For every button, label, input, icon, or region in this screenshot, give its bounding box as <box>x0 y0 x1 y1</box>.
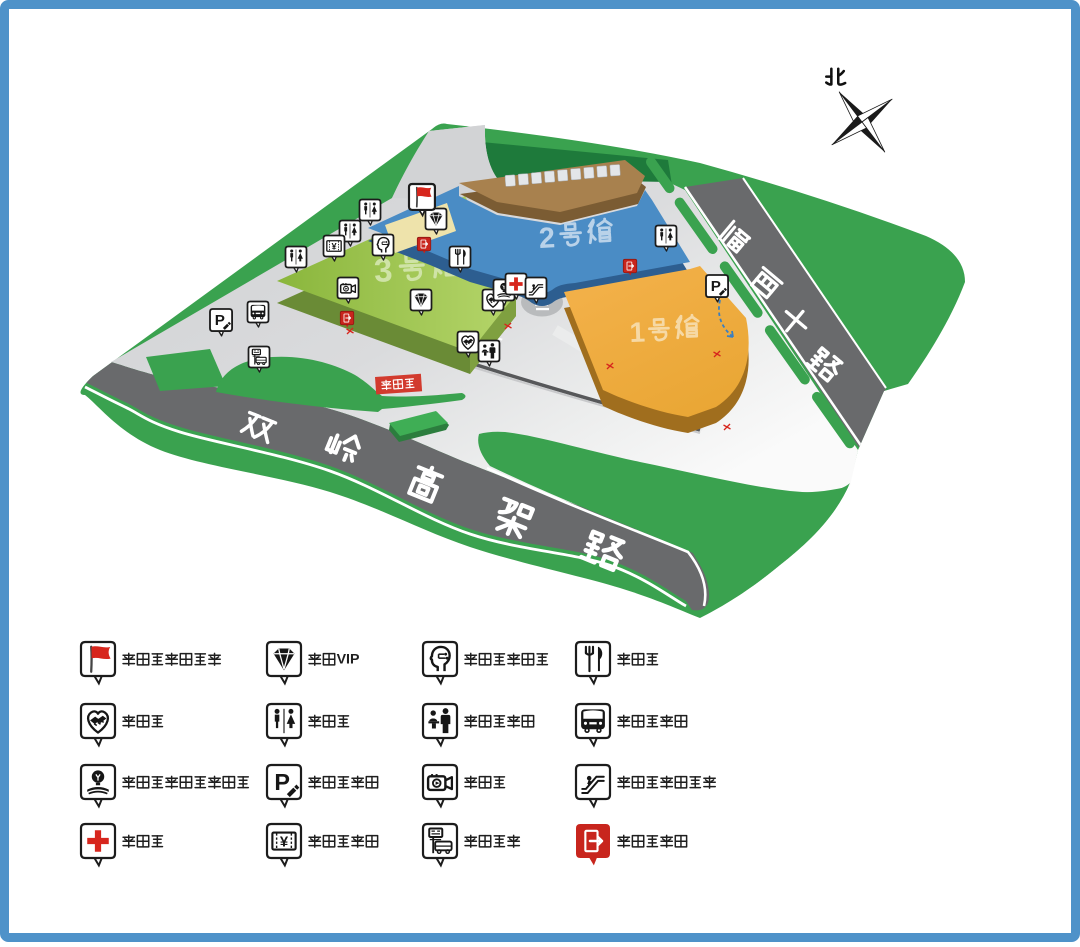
svg-text:1: 1 <box>629 316 646 348</box>
svg-text:VIP: VIP <box>337 652 360 668</box>
svg-text:2: 2 <box>538 222 556 255</box>
